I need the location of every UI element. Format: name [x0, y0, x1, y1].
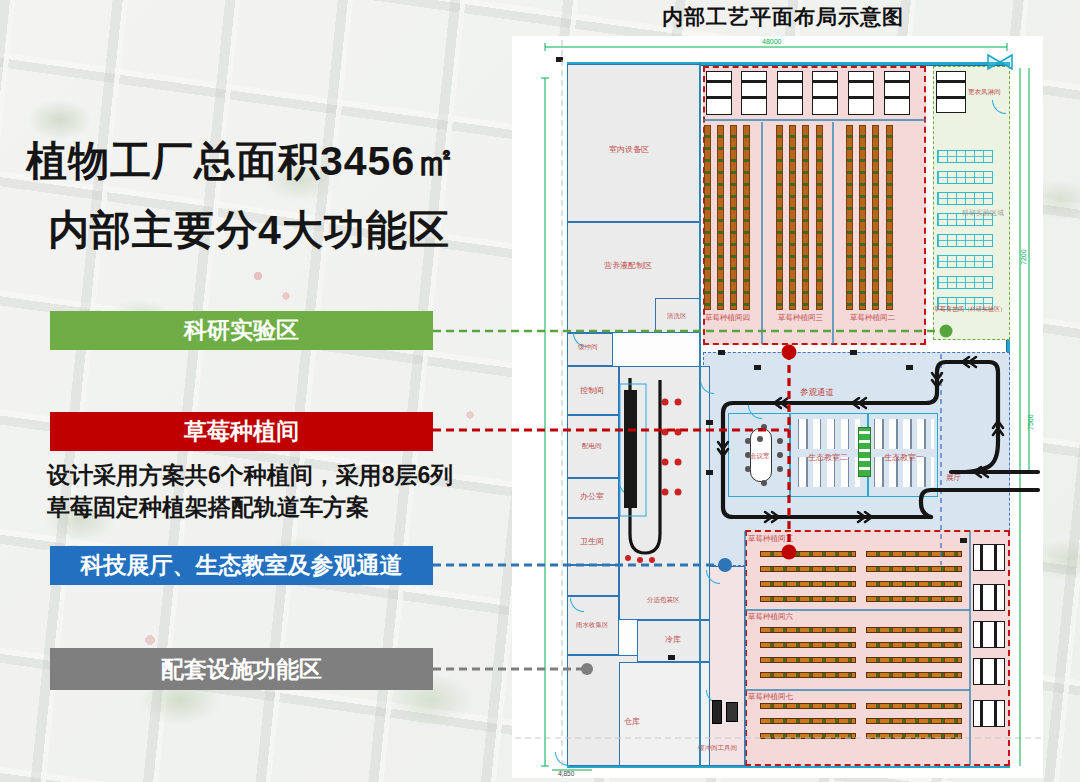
slide-title-line2: 内部主要分4大功能区 [48, 203, 450, 258]
research-rack [937, 234, 993, 247]
machine-icon [936, 71, 966, 113]
room-label-hall: 展厅 [946, 474, 961, 482]
room-label-office: 办公室 [580, 493, 604, 502]
machine-icon [973, 658, 1005, 685]
room-indoor-equipment [567, 64, 700, 222]
room-label-tool: 缓冲间工具间 [698, 744, 737, 751]
room-label-control: 控制间 [580, 387, 604, 396]
room-label-room6: 草莓种植间六 [748, 613, 793, 621]
room-label-room3: 草莓种植间三 [778, 314, 823, 322]
label-tour-corridor: 参观通道 [800, 388, 834, 397]
room-label-warehouse: 仓库 [624, 718, 640, 727]
equipment-icon [726, 702, 738, 722]
room-label-room7: 草莓种植间七 [748, 693, 793, 701]
planting-rack [760, 657, 856, 663]
planting-rack [760, 642, 856, 648]
door-tag [906, 365, 913, 370]
planting-rack [760, 581, 856, 587]
planting-rack [717, 125, 724, 310]
label-nursery: 草莓育苗间（科研实验区） [934, 306, 1006, 313]
room-label-eco1: 生态教室一 [884, 454, 924, 463]
slide: 植物工厂总面积3456㎡ 内部主要分4大功能区 科研实验区 草莓种植间 设计采用… [0, 0, 1080, 782]
banner-support: 配套设施功能区 [50, 648, 433, 690]
room-label-power: 配电间 [582, 442, 602, 449]
room-label-room5: 草莓种植间五 [748, 535, 793, 543]
plan-title: 内部工艺平面布局示意图 [652, 3, 914, 31]
machine-icon [973, 544, 1005, 571]
room-label-nutrient: 营养液配制区 [604, 262, 652, 271]
research-rack [937, 171, 993, 184]
room-unlabeled [567, 565, 619, 596]
planting-rack [802, 125, 809, 310]
planting-rack [866, 627, 962, 633]
planting-rack [760, 596, 856, 602]
planting-rack [846, 125, 853, 310]
planting-rack [760, 733, 856, 739]
door-tag [754, 365, 761, 370]
planting-rack [789, 125, 796, 310]
machine-icon [973, 584, 1005, 611]
door-tag [718, 350, 725, 355]
room-label-cold-storage: 冷库 [665, 636, 681, 645]
machine-icon [706, 71, 732, 115]
equipment-icon [712, 700, 722, 724]
planting-rack [866, 703, 962, 709]
planting-rack [743, 125, 750, 310]
room-label-sorting: 分选包装区 [647, 596, 680, 603]
planting-rack [866, 642, 962, 648]
door-tag [706, 420, 713, 425]
room-label-room2: 草莓种植间二 [850, 314, 895, 322]
label-research-area: 科研实验区域 [962, 208, 1004, 218]
room-label-rainwater: 雨水收集区 [576, 621, 609, 628]
machine-icon [741, 71, 767, 115]
door-tag [706, 470, 713, 475]
planting-rack [760, 551, 856, 557]
green-cabinet [858, 427, 871, 477]
planting-rack [872, 125, 879, 310]
door-tag [850, 350, 857, 355]
slide-title-line1: 植物工厂总面积3456㎡ [26, 134, 457, 189]
planting-rack [760, 718, 856, 724]
drawing-tag [556, 57, 563, 62]
planting-rack [760, 627, 856, 633]
planting-rack [866, 657, 962, 663]
room-label-meeting: 会议室 [750, 452, 770, 459]
room-label-changing: 更衣风淋间 [968, 88, 1001, 95]
room-label-indoor-equipment: 室内设备区 [609, 146, 649, 155]
machine-icon [848, 71, 874, 115]
planting-rack [866, 672, 962, 678]
room-label-buffer: 缓冲间 [578, 343, 598, 350]
planting-rack [776, 125, 783, 310]
banner-research: 科研实验区 [50, 311, 433, 350]
planting-rack [866, 581, 962, 587]
room-label-room4: 草莓种植间四 [705, 314, 750, 322]
machine-icon [973, 621, 1005, 648]
room-service-corridor [619, 662, 710, 766]
classroom-desks [798, 419, 860, 449]
description-line1: 设计采用方案共6个种植间，采用8层6列 [47, 462, 453, 488]
door-tag [960, 538, 967, 543]
research-rack [937, 276, 993, 289]
research-rack [937, 255, 993, 268]
machine-icon [812, 71, 838, 115]
machine-icon [973, 700, 1005, 727]
door-tag [668, 655, 675, 660]
planting-rack [859, 125, 866, 310]
room-label-washing: 清洗区 [667, 312, 687, 319]
room-label-toilet: 卫生间 [580, 538, 604, 547]
conference-chairs [757, 436, 763, 442]
banner-strawberry: 草莓种植间 [50, 412, 433, 451]
machine-icon [884, 71, 910, 115]
planting-rack [730, 125, 737, 310]
planting-rack [760, 566, 856, 572]
machine-icon [777, 71, 803, 115]
planting-rack [760, 703, 856, 709]
research-rack [937, 150, 993, 163]
research-rack [937, 192, 993, 205]
planting-rack [886, 125, 893, 310]
description-line2: 草莓固定种植架搭配轨道车方案 [47, 494, 369, 520]
planting-rack [866, 551, 962, 557]
planting-rack [760, 672, 856, 678]
planting-rack [704, 125, 711, 310]
classroom-desks [874, 419, 934, 449]
planting-rack [816, 125, 823, 310]
planting-rack [866, 566, 962, 572]
planting-rack [866, 718, 962, 724]
strawberry-description: 设计采用方案共6个种植间，采用8层6列 草莓固定种植架搭配轨道车方案 [47, 460, 527, 523]
planting-rack [866, 733, 962, 739]
planting-rack [866, 596, 962, 602]
banner-exhibit: 科技展厅、生态教室及参观通道 [50, 546, 433, 585]
room-label-eco2: 生态教室二 [808, 454, 848, 463]
